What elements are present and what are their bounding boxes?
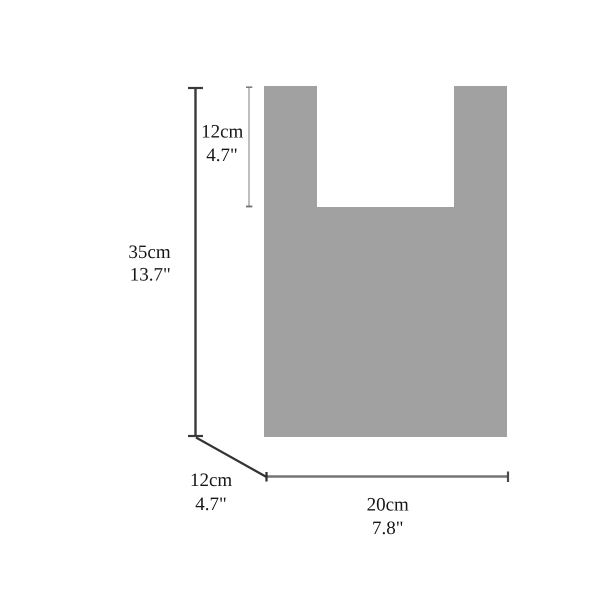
svg-text:4.7": 4.7"	[206, 145, 238, 166]
svg-text:35cm: 35cm	[128, 242, 170, 263]
svg-text:4.7": 4.7"	[195, 494, 227, 515]
svg-text:20cm: 20cm	[367, 495, 409, 516]
svg-text:13.7": 13.7"	[130, 265, 171, 286]
svg-text:7.8": 7.8"	[372, 518, 404, 539]
svg-text:12cm: 12cm	[201, 122, 243, 143]
svg-text:12cm: 12cm	[190, 470, 232, 491]
